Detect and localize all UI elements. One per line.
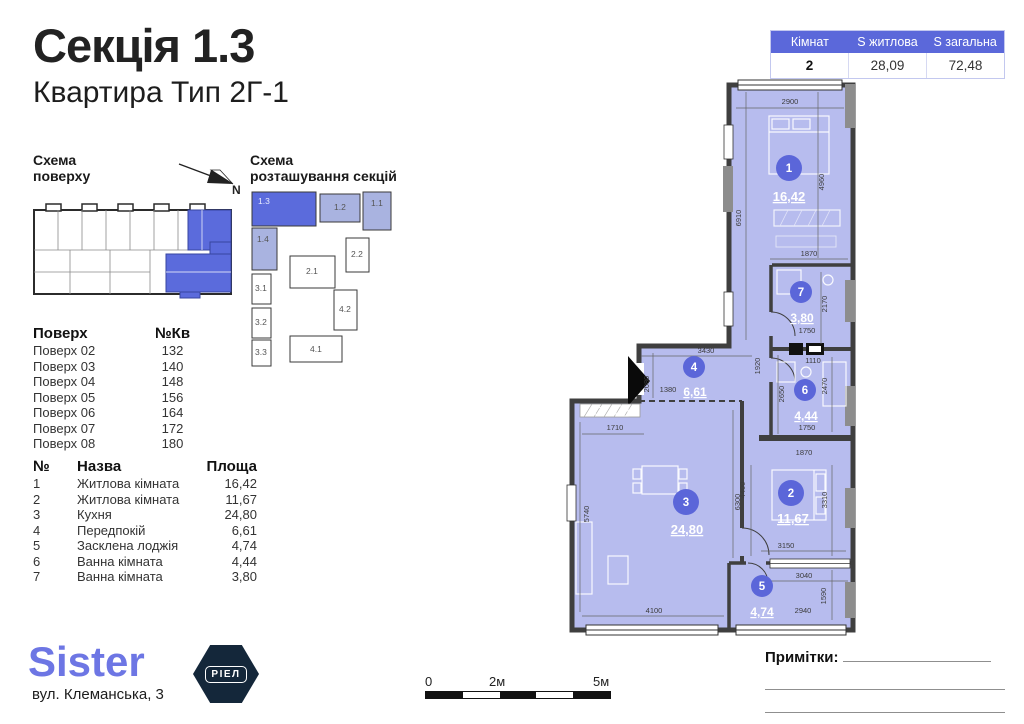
north-arrow-icon: N bbox=[175, 158, 245, 196]
table-row: 6Ванна кімната4,44 bbox=[33, 554, 258, 570]
svg-text:3.3: 3.3 bbox=[255, 347, 267, 357]
table-row: 4Передпокій6,61 bbox=[33, 523, 258, 539]
summary-table-header: Кімнат S житлова S загальна bbox=[771, 31, 1004, 53]
floors-header-floor: Поверх bbox=[33, 325, 145, 342]
svg-text:1.3: 1.3 bbox=[258, 196, 270, 206]
notes-line-2 bbox=[765, 667, 1005, 690]
svg-text:4960: 4960 bbox=[817, 174, 826, 191]
svg-text:2470: 2470 bbox=[820, 378, 829, 395]
svg-text:3.2: 3.2 bbox=[255, 317, 267, 327]
svg-text:2.1: 2.1 bbox=[306, 266, 318, 276]
summary-total-value: 72,48 bbox=[927, 53, 1004, 78]
svg-text:1710: 1710 bbox=[607, 423, 624, 432]
floors-header-apt: №Кв bbox=[145, 325, 200, 342]
floor-scheme-map bbox=[30, 192, 237, 306]
rooms-table: № Назва Площа 1Житлова кімната16,42 2Жит… bbox=[33, 456, 258, 585]
svg-text:1: 1 bbox=[786, 163, 793, 175]
table-row: Поверх 03140 bbox=[33, 359, 203, 375]
svg-text:2170: 2170 bbox=[820, 296, 829, 313]
scale-5m: 5м bbox=[593, 674, 609, 689]
svg-text:3: 3 bbox=[683, 497, 689, 509]
svg-text:1110: 1110 bbox=[805, 356, 821, 365]
svg-text:4.1: 4.1 bbox=[310, 344, 322, 354]
summary-col-rooms: Кімнат bbox=[771, 31, 849, 53]
svg-text:1920: 1920 bbox=[753, 358, 762, 375]
svg-text:6300: 6300 bbox=[733, 494, 742, 511]
section-scheme-map: 1.3 1.2 1.1 1.4 2.2 3.1 2.1 3.2 4.2 3.3 … bbox=[250, 190, 395, 368]
svg-text:6,61: 6,61 bbox=[683, 385, 707, 399]
brand-address: вул. Клеманська, 3 bbox=[32, 686, 164, 703]
svg-text:4.2: 4.2 bbox=[339, 304, 351, 314]
svg-text:2: 2 bbox=[788, 488, 794, 500]
shaft-blocks bbox=[789, 343, 824, 355]
svg-text:6: 6 bbox=[802, 385, 808, 397]
page-subtitle: Квартира Тип 2Г-1 bbox=[33, 76, 289, 110]
svg-text:3040: 3040 bbox=[796, 571, 813, 580]
table-row: 7Ванна кімната3,80 bbox=[33, 569, 258, 585]
svg-text:1.1: 1.1 bbox=[371, 198, 383, 208]
svg-text:1.4: 1.4 bbox=[257, 234, 269, 244]
table-row: Поверх 05156 bbox=[33, 390, 203, 406]
svg-text:1380: 1380 bbox=[660, 385, 677, 394]
svg-text:4100: 4100 bbox=[646, 606, 663, 615]
svg-text:2940: 2940 bbox=[795, 606, 812, 615]
svg-text:3150: 3150 bbox=[778, 541, 795, 550]
svg-text:5740: 5740 bbox=[582, 506, 591, 523]
svg-text:3430: 3430 bbox=[698, 346, 715, 355]
svg-text:16,42: 16,42 bbox=[773, 189, 806, 204]
rooms-header-area: Площа bbox=[197, 458, 257, 475]
brand-logo: Sister bbox=[28, 638, 145, 686]
scale-0: 0 bbox=[425, 674, 432, 689]
table-row: 5Засклена лоджія4,74 bbox=[33, 538, 258, 554]
scale-2m: 2м bbox=[489, 674, 505, 689]
svg-text:2.2: 2.2 bbox=[351, 249, 363, 259]
svg-text:2900: 2900 bbox=[782, 97, 799, 106]
svg-text:4,74: 4,74 bbox=[750, 605, 774, 619]
svg-text:2080: 2080 bbox=[642, 376, 651, 393]
rooms-header-num: № bbox=[33, 458, 77, 475]
floorplan-sheet: Секція 1.3 Квартира Тип 2Г-1 Кімнат S жи… bbox=[0, 0, 1024, 724]
svg-text:1.2: 1.2 bbox=[334, 202, 346, 212]
svg-text:24,80: 24,80 bbox=[671, 522, 704, 537]
table-row: Поверх 04148 bbox=[33, 374, 203, 390]
summary-col-total: S загальна bbox=[926, 31, 1004, 53]
notes-line-3 bbox=[765, 690, 1005, 713]
svg-text:4,44: 4,44 bbox=[794, 409, 818, 423]
svg-text:1750: 1750 bbox=[799, 326, 816, 335]
svg-text:11,67: 11,67 bbox=[777, 511, 809, 526]
table-row: 3Кухня24,80 bbox=[33, 507, 258, 523]
floors-table: Поверх №Кв Поверх 02132 Поверх 03140 Пов… bbox=[33, 323, 203, 452]
svg-text:3,80: 3,80 bbox=[790, 311, 814, 325]
table-row: Поверх 06164 bbox=[33, 405, 203, 421]
svg-text:7: 7 bbox=[798, 287, 804, 299]
svg-text:5: 5 bbox=[759, 581, 766, 593]
svg-text:1750: 1750 bbox=[799, 423, 816, 432]
svg-text:1870: 1870 bbox=[801, 249, 818, 258]
table-row: Поверх 02132 bbox=[33, 343, 203, 359]
table-row: 2Житлова кімната11,67 bbox=[33, 492, 258, 508]
scale-bar-segments bbox=[425, 691, 611, 699]
notes-line-1 bbox=[843, 648, 991, 662]
notes-section: Примітки: bbox=[765, 648, 1005, 713]
table-row: Поверх 08180 bbox=[33, 436, 203, 452]
svg-text:6910: 6910 bbox=[734, 210, 743, 227]
rooms-header-name: Назва bbox=[77, 458, 197, 475]
svg-text:3.1: 3.1 bbox=[255, 283, 267, 293]
svg-text:3310: 3310 bbox=[820, 492, 829, 509]
svg-text:1590: 1590 bbox=[819, 588, 828, 605]
section-scheme-title: Схема розташування секцій bbox=[250, 152, 397, 184]
notes-label: Примітки: bbox=[765, 649, 839, 666]
table-row: Поверх 07172 bbox=[33, 421, 203, 437]
riel-badge: РІЕЛ bbox=[193, 645, 259, 703]
svg-text:2650: 2650 bbox=[777, 386, 786, 403]
loggia-glazing bbox=[770, 559, 850, 568]
page-title: Секція 1.3 bbox=[33, 18, 254, 73]
summary-col-living: S житлова bbox=[849, 31, 927, 53]
table-row: 1Житлова кімната16,42 bbox=[33, 476, 258, 492]
svg-text:4: 4 bbox=[691, 362, 698, 374]
scale-bar: 0 2м 5м bbox=[425, 674, 611, 699]
floor-plan: 2900 6910 4960 1870 2170 1750 1110 2650 … bbox=[556, 70, 868, 670]
floor-scheme-title: Схема поверху bbox=[33, 152, 90, 184]
svg-text:1870: 1870 bbox=[796, 448, 813, 457]
